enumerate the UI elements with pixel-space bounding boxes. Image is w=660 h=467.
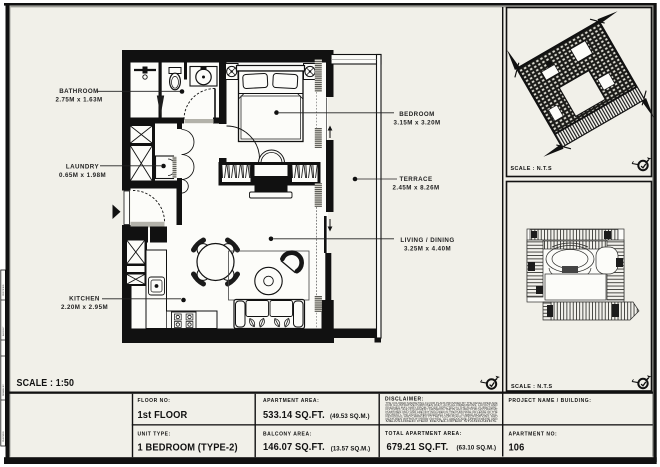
svg-text:BALCONY AREA:: BALCONY AREA: — [263, 431, 312, 437]
svg-text:LAUNDRY: LAUNDRY — [66, 164, 100, 171]
svg-text:SCALE : N.T.S: SCALE : N.T.S — [511, 166, 552, 172]
svg-text:DRAWN BY: DRAWN BY — [2, 384, 5, 396]
svg-text:(13.57 SQ.M.): (13.57 SQ.M.) — [331, 445, 371, 452]
svg-text:APARTMENT AREA:: APARTMENT AREA: — [263, 398, 319, 404]
svg-text:1st FLOOR: 1st FLOOR — [138, 410, 188, 422]
svg-text:TOTAL APARTMENT AREA:: TOTAL APARTMENT AREA: — [385, 431, 462, 437]
svg-text:FLOOR NO:: FLOOR NO: — [138, 398, 171, 404]
svg-text:106: 106 — [509, 442, 525, 454]
svg-text:0.65M x 1.98M: 0.65M x 1.98M — [59, 172, 106, 179]
svg-text:BEDROOM: BEDROOM — [399, 111, 434, 118]
svg-text:CHECKED: CHECKED — [3, 431, 5, 442]
svg-text:APARTMENT NO:: APARTMENT NO: — [509, 431, 558, 437]
svg-text:(49.53 SQ.M.): (49.53 SQ.M.) — [330, 413, 370, 420]
svg-text:679.21 SQ.FT.: 679.21 SQ.FT. — [387, 442, 449, 454]
svg-text:2.20M x 2.95M: 2.20M x 2.95M — [61, 304, 108, 311]
svg-text:3.15M x 3.20M: 3.15M x 3.20M — [393, 119, 440, 126]
svg-text:KITCHEN: KITCHEN — [69, 296, 100, 303]
svg-text:(63.10 SQ.M.): (63.10 SQ.M.) — [457, 445, 497, 452]
svg-text:2.75M x 1.63M: 2.75M x 1.63M — [55, 96, 102, 103]
svg-text:3.25M x 4.40M: 3.25M x 4.40M — [404, 245, 451, 252]
svg-text:BATHROOM: BATHROOM — [59, 88, 99, 95]
svg-text:UNIT TYPE:: UNIT TYPE: — [138, 431, 171, 437]
svg-text:MEASURED PER DEVELOPER STANDAR: MEASURED PER DEVELOPER STANDARDS. — [386, 420, 499, 423]
svg-text:LIVING / DINING: LIVING / DINING — [400, 237, 454, 244]
svg-text:AS BUILT: AS BUILT — [2, 326, 5, 336]
svg-text:CERTIFIED: CERTIFIED — [3, 284, 5, 296]
svg-text:2.45M x 8.26M: 2.45M x 8.26M — [392, 184, 439, 191]
svg-text:TERRACE: TERRACE — [399, 176, 432, 183]
svg-text:SCALE : 1:50: SCALE : 1:50 — [17, 377, 75, 387]
svg-text:PROJECT NAME / BUILDING:: PROJECT NAME / BUILDING: — [509, 398, 592, 404]
svg-text:533.14 SQ.FT.: 533.14 SQ.FT. — [263, 410, 325, 422]
svg-text:146.07 SQ.FT.: 146.07 SQ.FT. — [263, 442, 325, 454]
svg-text:1 BEDROOM (TYPE-2): 1 BEDROOM (TYPE-2) — [138, 442, 238, 454]
svg-text:SCALE : N.T.S: SCALE : N.T.S — [511, 384, 552, 390]
